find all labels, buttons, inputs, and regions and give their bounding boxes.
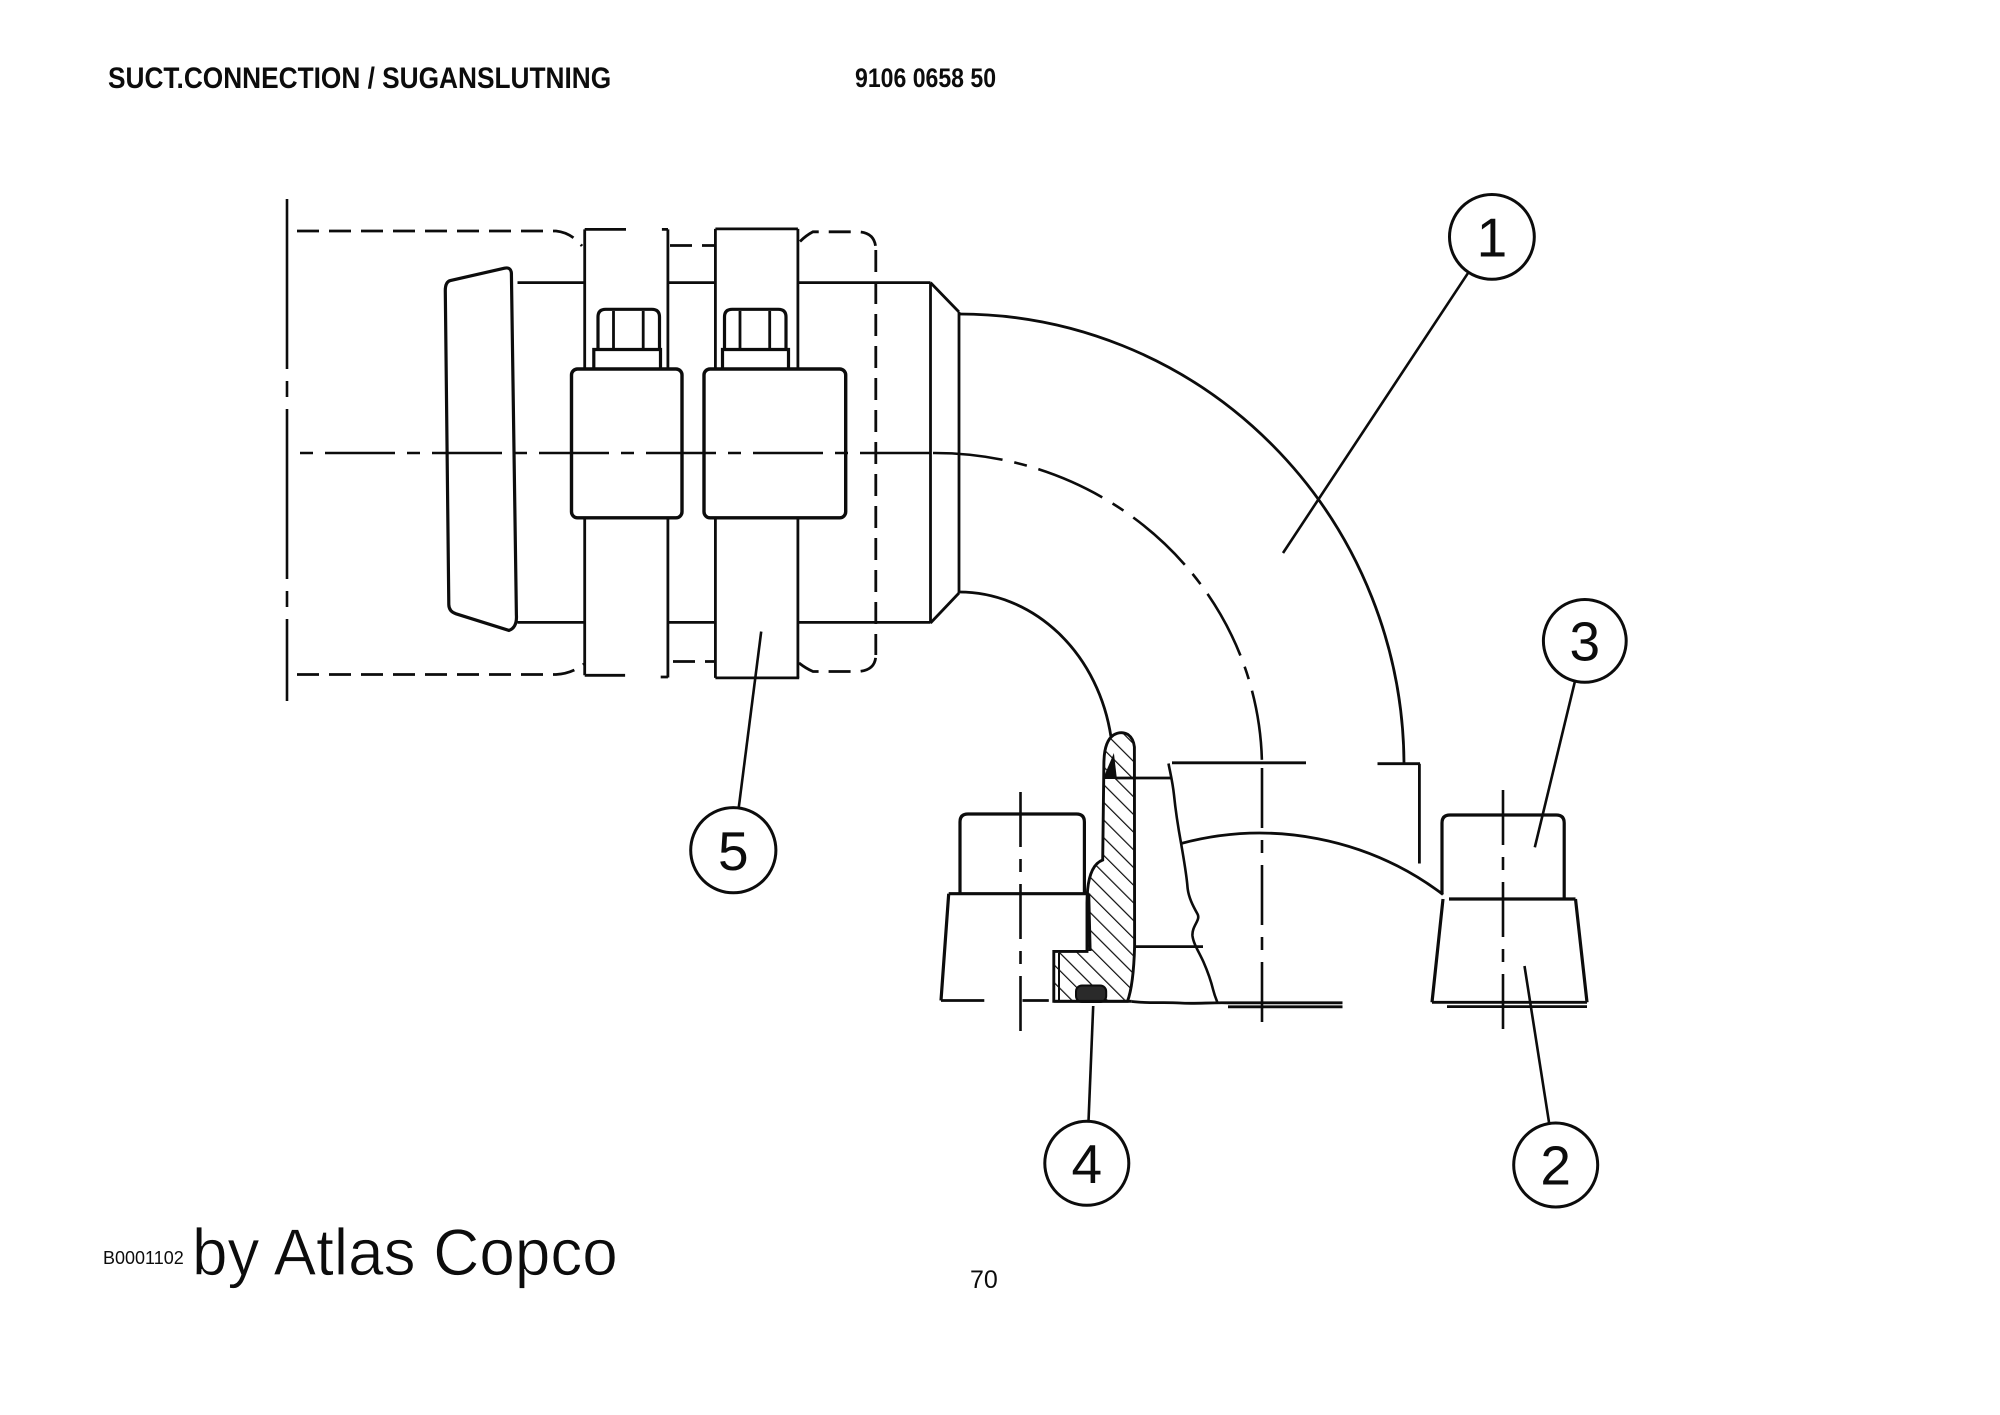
svg-text:4: 4 bbox=[1072, 1133, 1103, 1195]
svg-text:1: 1 bbox=[1477, 207, 1508, 269]
svg-text:3: 3 bbox=[1570, 611, 1601, 673]
svg-text:2: 2 bbox=[1540, 1135, 1571, 1197]
svg-text:5: 5 bbox=[718, 820, 749, 882]
